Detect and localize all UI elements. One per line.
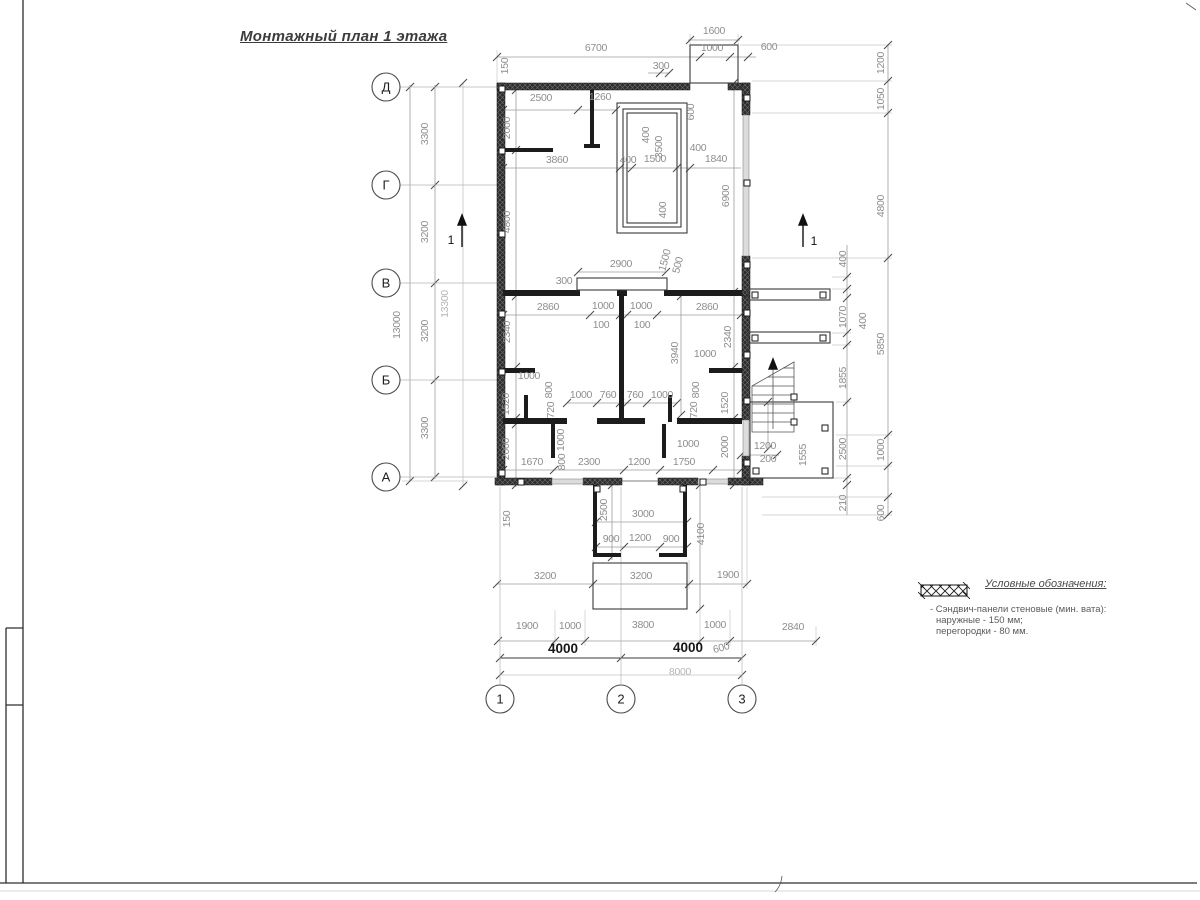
axis-label: Д [382, 80, 391, 95]
dimension-label: 300 [556, 275, 573, 287]
dimension-label: 13300 [439, 290, 451, 318]
dimension-label: 1200 [754, 440, 777, 452]
dimension-label: 720 [688, 401, 700, 418]
axis-label: В [382, 276, 391, 291]
dimension-label: 2500 [598, 498, 610, 521]
dimension-label: 400 [657, 201, 669, 218]
dimension-label: 1520 [719, 391, 731, 414]
dimension-label: 1900 [717, 569, 740, 581]
floor-plan-svg: 1600670010006003001502500126020006004003… [0, 0, 1200, 900]
legend-item-text: - Сэндвич-панели стеновые (мин. вата): н… [930, 604, 1106, 637]
dimension-label: 4800 [501, 210, 513, 233]
dimension-label: 800 [690, 381, 702, 398]
legend: Условные обозначения: - Сэндвич-панели с… [918, 578, 1188, 637]
dimension-label: 800 [543, 381, 555, 398]
dimension-label: 2340 [722, 325, 734, 348]
axis-label: А [382, 470, 391, 485]
section-mark-label: 1 [811, 234, 818, 248]
dimension-label: 1555 [797, 443, 809, 466]
dimension-label: 600 [712, 640, 732, 656]
drawing-sheet: 1600670010006003001502500126020006004003… [0, 0, 1200, 900]
legend-line: - Сэндвич-панели стеновые (мин. вата): [930, 604, 1106, 615]
dimension-label: 400 [620, 154, 637, 166]
dimension-label: 3200 [630, 570, 653, 582]
dimension-label: 1000 [592, 300, 615, 312]
dimension-label: 2000 [719, 435, 731, 458]
dimension-label: 1000 [701, 42, 724, 54]
dimension-label: 900 [603, 533, 620, 545]
dimension-label: 400 [857, 312, 869, 329]
section-mark-label: 1 [448, 233, 455, 247]
dimension-label: 4000 [548, 641, 578, 656]
axis-label: 3 [738, 692, 745, 707]
dimension-label: 3200 [419, 220, 431, 243]
dimension-label: 100 [593, 319, 610, 331]
dimension-label: 1900 [516, 620, 539, 632]
dimension-label: 600 [761, 41, 778, 53]
dimension-label: 2840 [782, 621, 805, 633]
dimension-label: 1000 [704, 619, 727, 631]
dimension-label: 1000 [651, 389, 674, 401]
dimension-label: 150 [499, 57, 511, 74]
dimension-label: 500 [670, 255, 686, 275]
dimension-label: 1000 [630, 300, 653, 312]
legend-title: Условные обозначения: [985, 578, 1188, 590]
dimension-label: 1000 [694, 348, 717, 360]
dimension-label: 4100 [695, 522, 707, 545]
dimension-label: 1050 [875, 87, 887, 110]
dimension-label: 900 [663, 533, 680, 545]
dimension-label: 1500 [644, 153, 667, 165]
dimension-label: 600 [685, 103, 697, 120]
dimension-label: 400 [640, 126, 652, 143]
pen-mark [775, 876, 782, 892]
dimension-label: 1750 [673, 456, 696, 468]
dimension-label: 2860 [537, 301, 560, 313]
dimension-label: 3200 [534, 570, 557, 582]
dimension-label: 2900 [610, 258, 633, 270]
dimension-label: 1200 [629, 532, 652, 544]
dimension-label: 200 [760, 453, 777, 465]
axis-label: 1 [496, 692, 503, 707]
dimension-label: 3940 [669, 341, 681, 364]
dimension-label: 1600 [703, 25, 726, 37]
extension-lines [402, 34, 892, 646]
dimension-label: 2300 [578, 456, 601, 468]
dimension-label: 760 [600, 389, 617, 401]
dimension-label: 1000 [555, 428, 567, 451]
dimension-label: 100 [634, 319, 651, 331]
dimension-label: 2000 [501, 116, 513, 139]
dimension-label: 2860 [696, 301, 719, 313]
dimension-label: 150 [501, 510, 513, 527]
dimension-label: 1520 [500, 392, 512, 415]
dimension-label: 13000 [391, 311, 403, 339]
drawing-title: Монтажный план 1 этажа [240, 28, 447, 45]
dimension-label: 1670 [521, 456, 544, 468]
dimension-label: 1000 [875, 438, 887, 461]
axis-label: Г [382, 178, 389, 193]
dimension-label: 6700 [585, 42, 608, 54]
dimension-label: 210 [837, 494, 849, 511]
dimension-label: 1000 [677, 438, 700, 450]
exterior-stairs [752, 359, 794, 432]
axis-label: 2 [617, 692, 624, 707]
dimension-label: 760 [627, 389, 644, 401]
sandwich-panel-hatch-symbol [918, 582, 970, 599]
dimension-label: 3200 [419, 319, 431, 342]
dimension-label: 1855 [837, 366, 849, 389]
dimension-label: 300 [653, 60, 670, 72]
dimension-label: 4000 [673, 640, 703, 655]
dimension-label: 8000 [669, 666, 692, 678]
dimension-label: 1840 [705, 153, 728, 165]
sheet-frame [0, 0, 1200, 892]
legend-line: наружные - 150 мм; [936, 615, 1106, 626]
dimension-label: 5850 [875, 332, 887, 355]
dimension-label: 6900 [720, 184, 732, 207]
dimension-label: 3800 [632, 619, 655, 631]
dimension-label: 3300 [419, 416, 431, 439]
dimension-label: 2500 [837, 437, 849, 460]
dimension-label: 720 [545, 401, 557, 418]
corner-mark [1186, 3, 1196, 10]
dimension-label: 1000 [570, 389, 593, 401]
dimension-label: 1260 [589, 91, 612, 103]
dimension-label: 1000 [559, 620, 582, 632]
dimension-label: 4800 [875, 194, 887, 217]
legend-item: - Сэндвич-панели стеновые (мин. вата): н… [918, 604, 1188, 637]
dimension-label: 2000 [500, 437, 512, 460]
dimension-label: 1200 [628, 456, 651, 468]
dimension-label: 400 [837, 250, 849, 267]
legend-line: перегородки - 80 мм. [936, 626, 1106, 637]
dimension-label: 3300 [419, 122, 431, 145]
dimension-label: 1000 [518, 370, 541, 382]
dimension-label: 3860 [546, 154, 569, 166]
dimension-label: 1070 [837, 305, 849, 328]
dimension-label: 800 [556, 453, 568, 470]
dimension-labels: 1600670010006003001502500126020006004003… [391, 25, 887, 678]
axis-label: Б [382, 373, 391, 388]
dimension-label: 2500 [530, 92, 553, 104]
dimension-label: 3000 [632, 508, 655, 520]
dimension-label: 2340 [501, 320, 513, 343]
dimension-label: 1200 [875, 51, 887, 74]
dimension-label: 600 [875, 504, 887, 521]
